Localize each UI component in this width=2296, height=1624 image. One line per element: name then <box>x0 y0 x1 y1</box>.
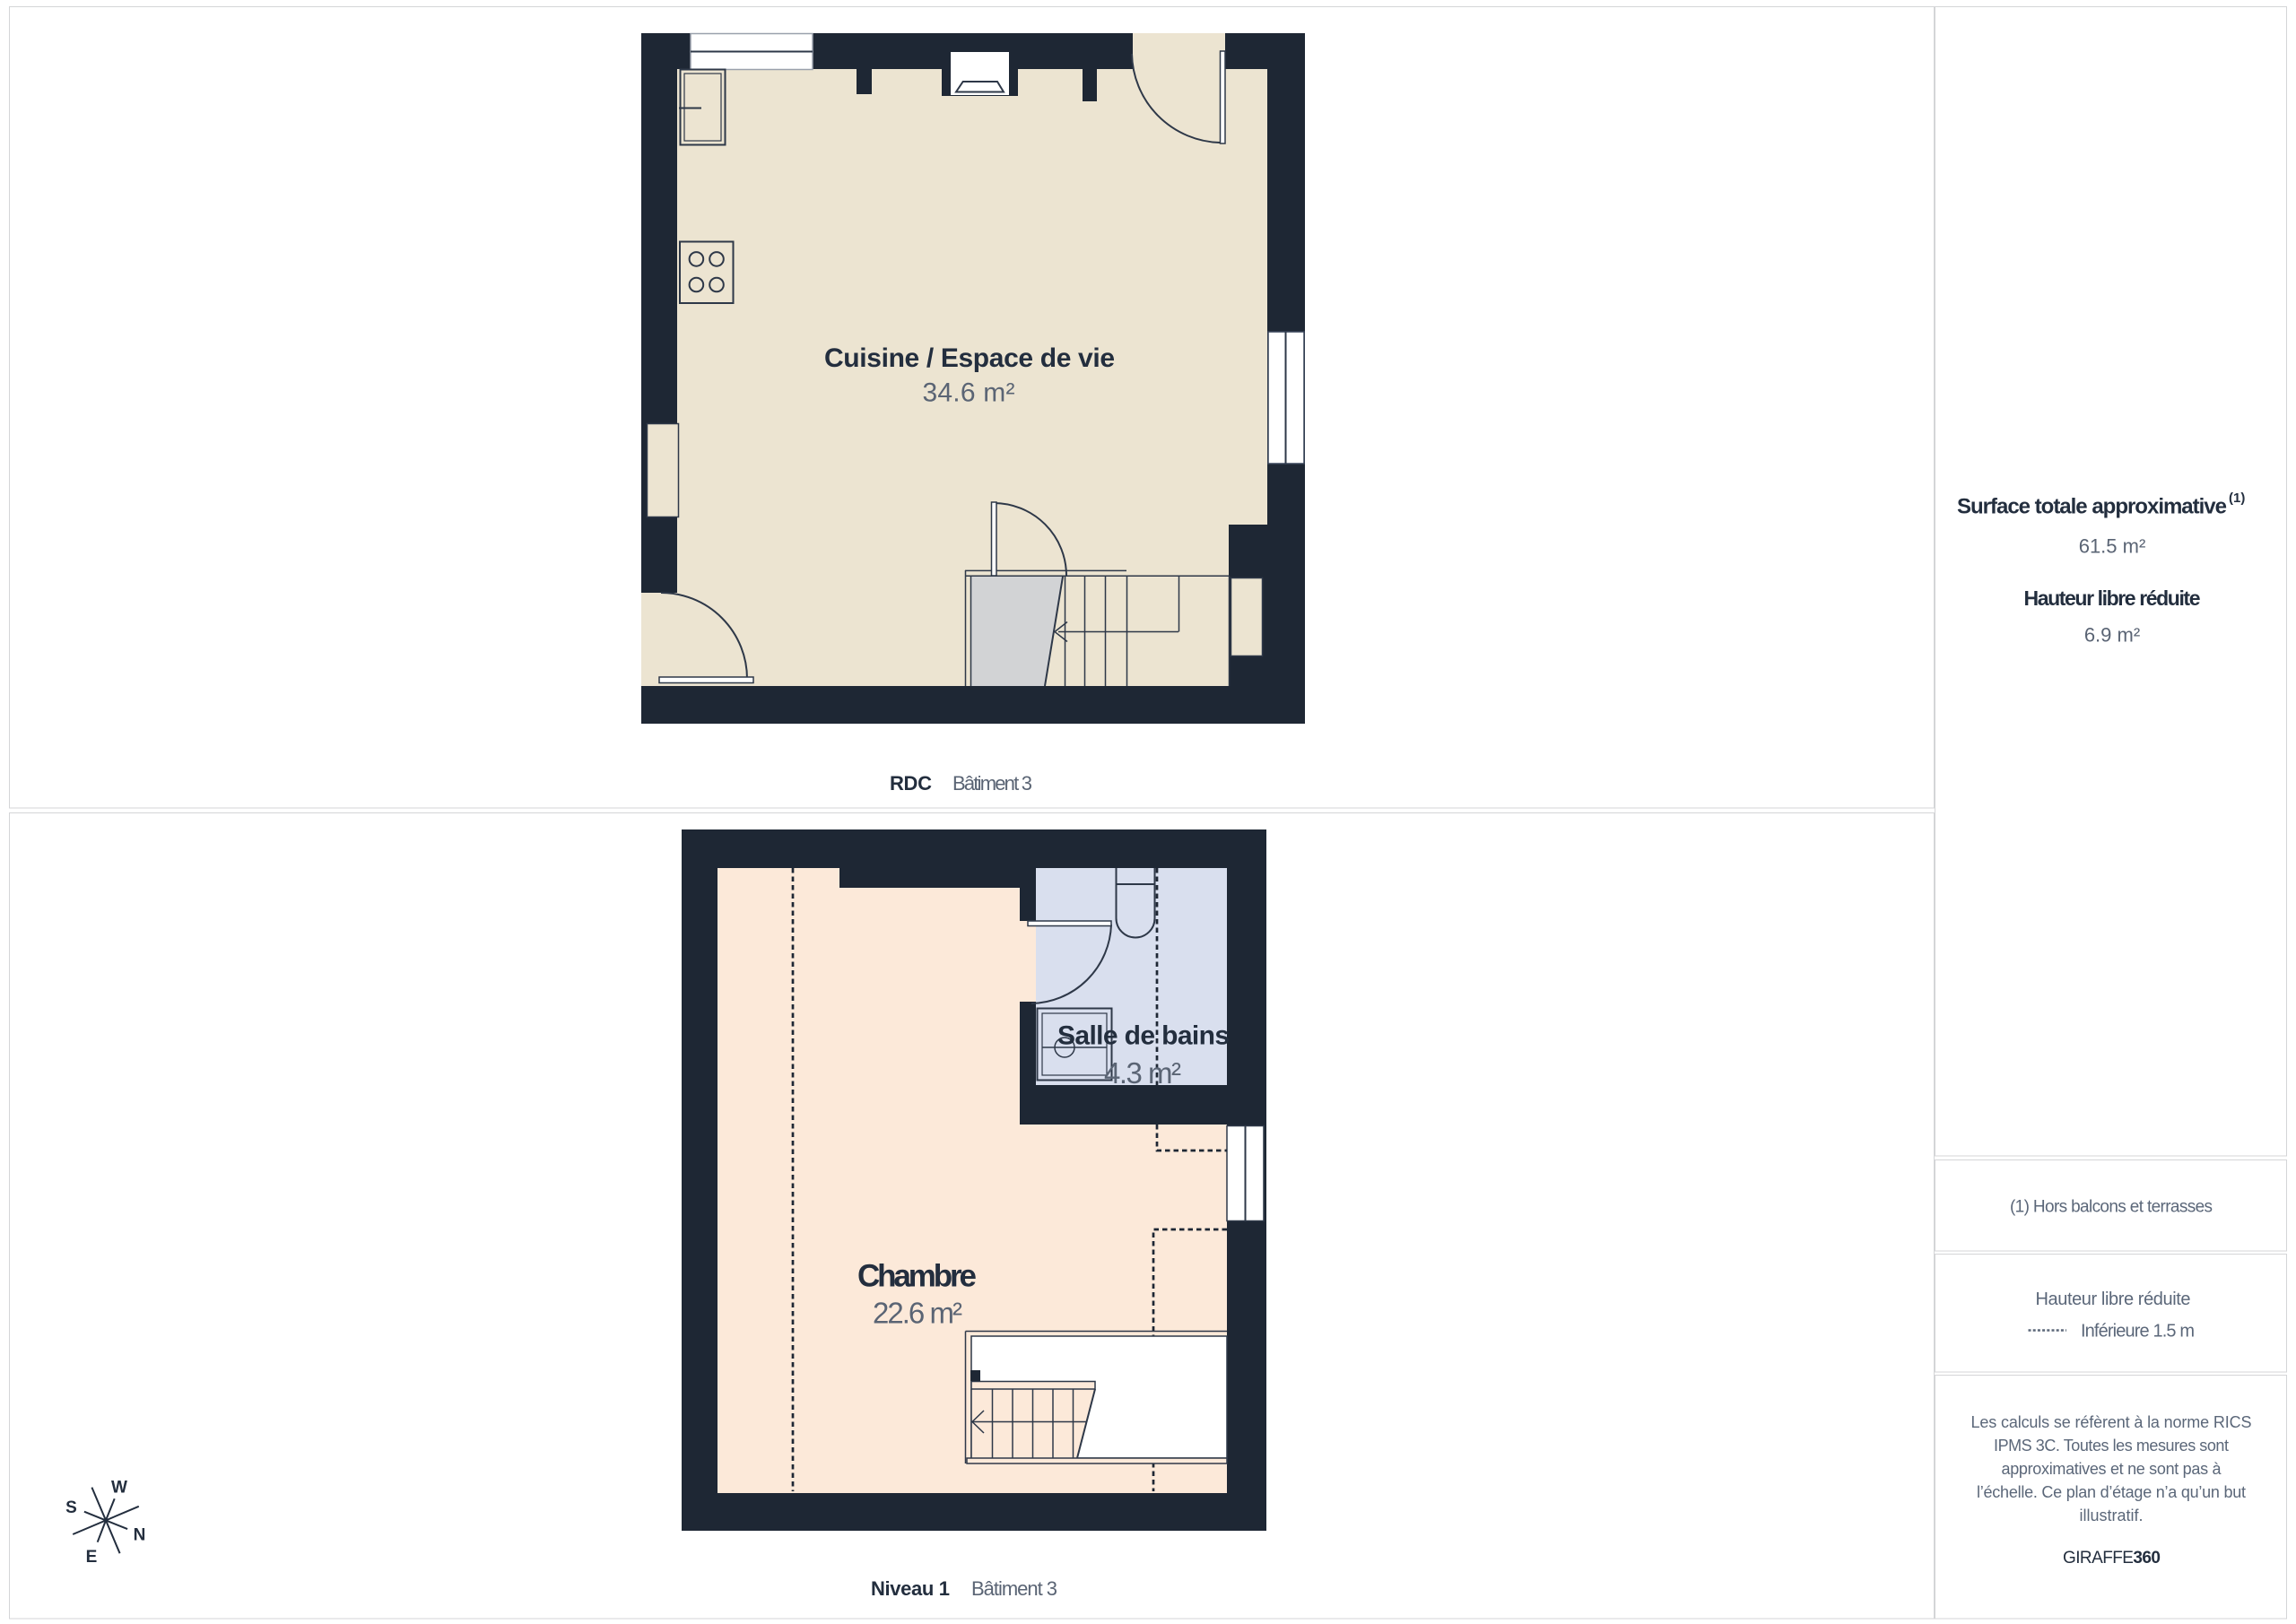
svg-text:Les calculs se réfèrent à la n: Les calculs se réfèrent à la norme RICS <box>1971 1413 2252 1431</box>
svg-text:4.3 m²: 4.3 m² <box>1104 1056 1181 1090</box>
svg-text:S: S <box>65 1498 77 1517</box>
svg-text:Bâtiment 3: Bâtiment 3 <box>952 772 1032 795</box>
svg-text:Niveau 1: Niveau 1 <box>871 1577 950 1600</box>
svg-text:N: N <box>134 1526 146 1545</box>
svg-text:Inférieure 1.5 m: Inférieure 1.5 m <box>2081 1322 2195 1342</box>
svg-text:E: E <box>86 1548 98 1567</box>
svg-text:Hauteur libre réduite: Hauteur libre réduite <box>2036 1290 2191 1309</box>
svg-text:IPMS 3C. Toutes les mesures so: IPMS 3C. Toutes les mesures sont <box>1994 1437 2229 1455</box>
svg-text:approximatives et ne sont pas: approximatives et ne sont pas à <box>2002 1460 2222 1478</box>
svg-text:RDC: RDC <box>890 772 932 795</box>
svg-text:(1) Hors balcons et terrasses: (1) Hors balcons et terrasses <box>2010 1198 2213 1217</box>
svg-text:Cuisine / Espace de vie: Cuisine / Espace de vie <box>824 343 1115 373</box>
svg-text:Bâtiment 3: Bâtiment 3 <box>971 1577 1057 1600</box>
svg-text:GIRAFFE360: GIRAFFE360 <box>2063 1549 2161 1568</box>
svg-text:Chambre: Chambre <box>857 1259 977 1294</box>
svg-text:34.6 m²: 34.6 m² <box>923 378 1015 408</box>
svg-text:(1): (1) <box>2229 491 2245 506</box>
svg-text:Salle de bains: Salle de bains <box>1057 1021 1230 1051</box>
svg-text:61.5 m²: 61.5 m² <box>2079 535 2146 558</box>
svg-text:W: W <box>111 1479 127 1498</box>
svg-text:Hauteur libre réduite: Hauteur libre réduite <box>2024 586 2201 610</box>
svg-text:Surface totale approximative: Surface totale approximative <box>1957 495 2227 519</box>
svg-text:6.9 m²: 6.9 m² <box>2084 624 2140 647</box>
svg-text:l’échelle. Ce plan d’étage n’a: l’échelle. Ce plan d’étage n’a qu’un but <box>1977 1483 2246 1501</box>
svg-text:illustratif.: illustratif. <box>2079 1507 2143 1524</box>
svg-text:22.6 m²: 22.6 m² <box>873 1297 962 1330</box>
